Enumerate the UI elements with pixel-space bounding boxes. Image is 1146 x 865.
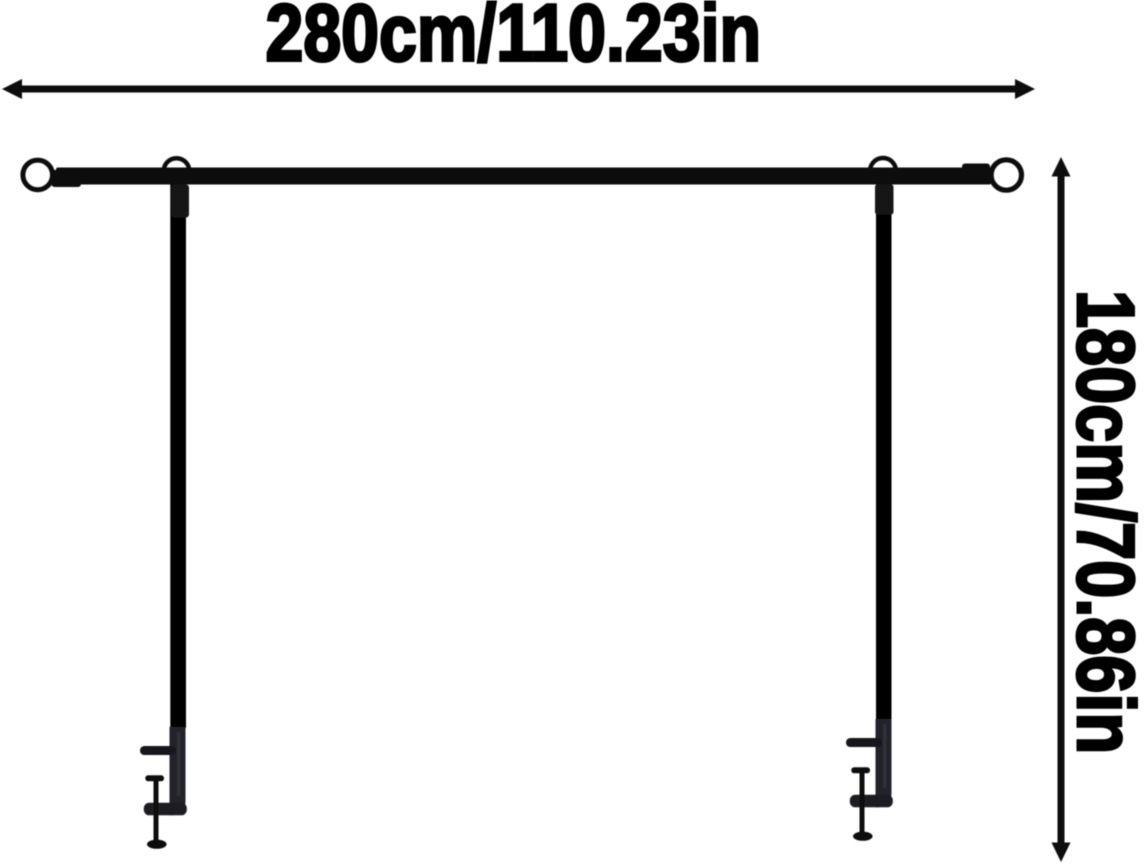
svg-text:280cm/110.23in: 280cm/110.23in — [266, 0, 762, 78]
svg-text:180cm/70.86in: 180cm/70.86in — [1061, 290, 1146, 754]
